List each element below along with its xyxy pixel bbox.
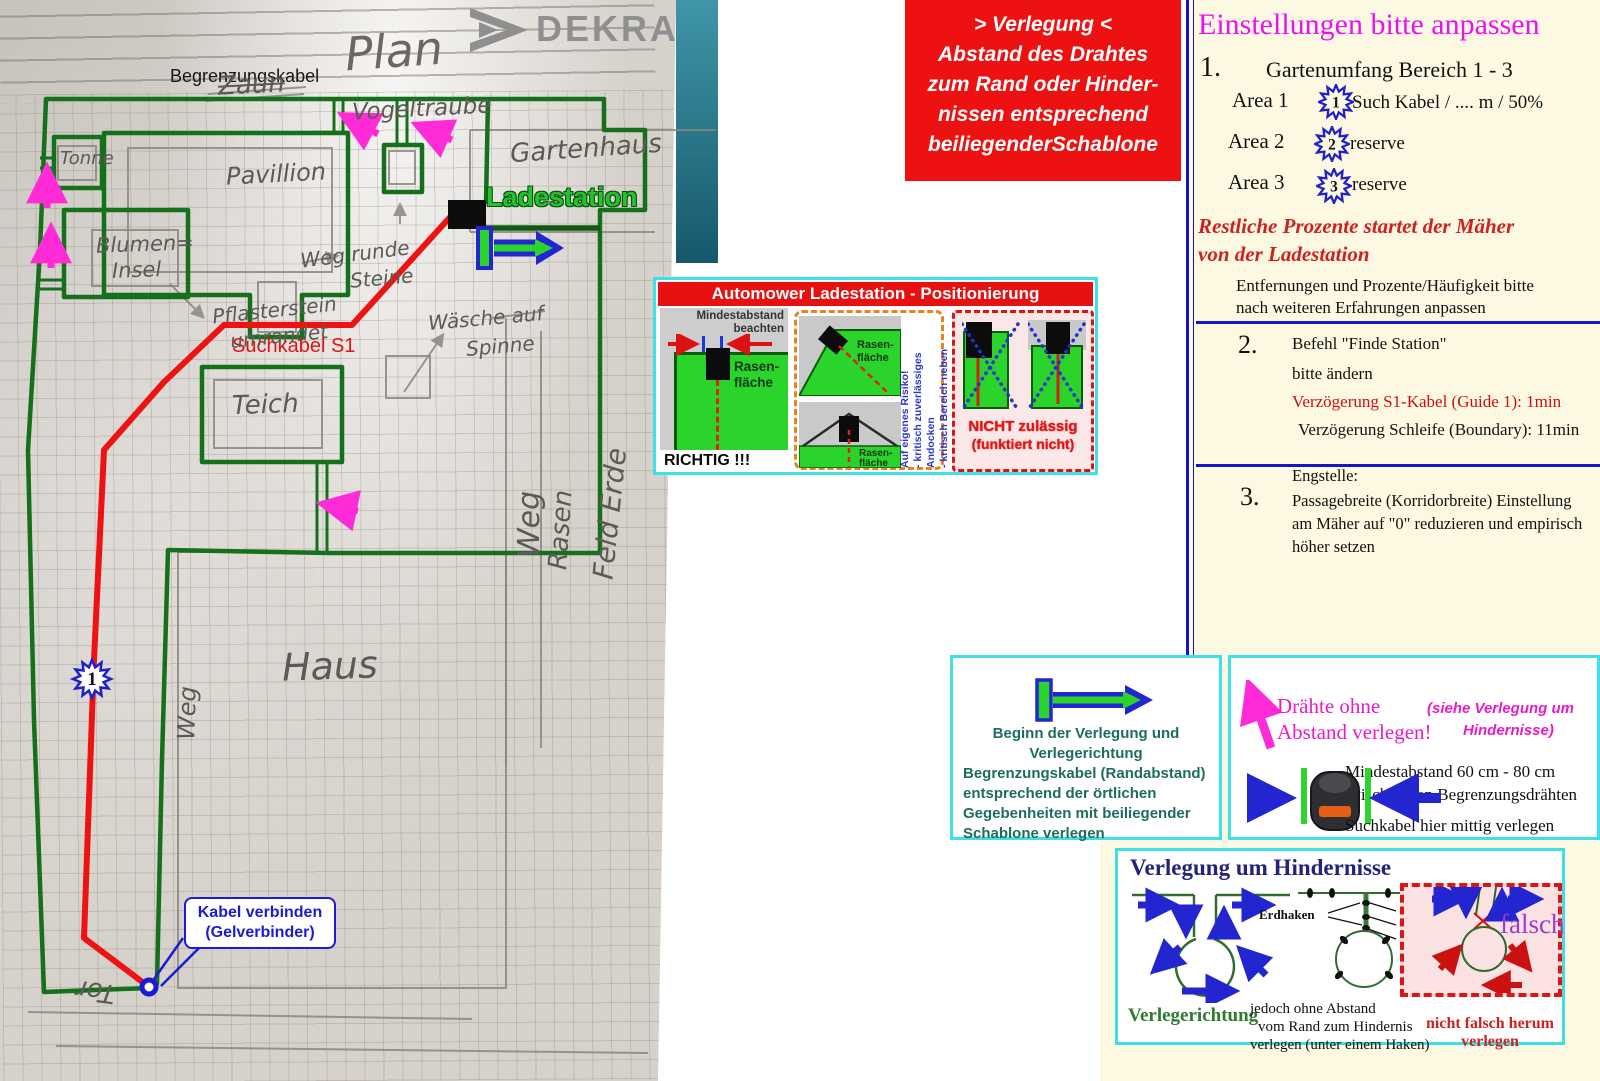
richtig-diagram: Mindestabstand beachten Rasen- fläche xyxy=(660,308,788,450)
item3-number: 3. xyxy=(1240,482,1260,512)
hw-blumen-1: Blumen= xyxy=(96,230,195,257)
item2-line1: Befehl "Finde Station" xyxy=(1292,334,1447,354)
nicht-diagram-2 xyxy=(1028,320,1086,412)
draehte-panel: Drähte ohne Abstand verlegen! (siehe Ver… xyxy=(1228,655,1600,840)
note-red-1: Restliche Prozente startet der Mäher xyxy=(1198,214,1514,239)
rasen-label-1b: fläche xyxy=(734,376,773,389)
automower-position-panel: Automower Ladestation - Positionierung M… xyxy=(653,277,1098,475)
item2-line4: Verzögerung Schleife (Boundary): 11min xyxy=(1298,420,1579,440)
area-2-badge: 2 xyxy=(1328,136,1336,153)
siehe-line2: Hindernisse) xyxy=(1463,722,1554,739)
item2-number: 2. xyxy=(1238,330,1258,360)
note-line: Abstand des Drahtes xyxy=(905,40,1181,70)
beginn-line6: Schablone verlegen xyxy=(963,824,1105,844)
separator-1 xyxy=(1196,321,1600,324)
guide-dashed-line xyxy=(716,380,719,450)
kabel-verbinden-callout: Kabel verbinden (Gelverbinder) xyxy=(184,897,336,949)
item2-red: Verzögerung S1-Kabel (Guide 1): 1min xyxy=(1292,392,1561,412)
area-2-star-icon: 2 xyxy=(1314,126,1350,162)
rasen-label-2b: fläche xyxy=(857,352,889,364)
hw-weg-haus: Weg xyxy=(172,630,204,741)
risiko-diagram-diagonal: Rasen- fläche xyxy=(799,316,901,396)
nicht-diagram-1 xyxy=(962,320,1020,412)
rasen-label-1a: Rasen- xyxy=(734,360,779,373)
ladestation-label: Ladestation xyxy=(486,182,638,213)
nicht-zulaessig-text2: (funktiert nicht) xyxy=(954,436,1092,452)
start-direction-arrow-icon xyxy=(478,228,564,268)
area-3-label: Area 3 xyxy=(1228,170,1285,195)
jedoch-line3: verlegen (unter einem Haken) xyxy=(1250,1037,1430,1054)
note-black-2: nach weiteren Erfahrungen anpassen xyxy=(1236,298,1486,318)
area-3-badge: 3 xyxy=(1330,178,1338,195)
cable-connector-icon xyxy=(142,980,156,994)
nicht-zulaessig-text1: NICHT zulässig xyxy=(954,418,1092,435)
hw-zaun: Zaun xyxy=(217,68,285,101)
item3-line2: Passagebreite (Korridorbreite) Einstellu… xyxy=(1292,491,1572,511)
area-2-value: reserve xyxy=(1350,133,1405,155)
suchkabel-mittig-label: Suchkabel hier mittig verlegen xyxy=(1345,816,1554,836)
area-1-value: Such Kabel / .... m / 50% xyxy=(1352,92,1543,114)
item1-number: 1. xyxy=(1200,52,1221,84)
kabel-verbinden-line2: (Gelverbinder) xyxy=(190,923,330,943)
draehte-line1: Drähte ohne xyxy=(1277,694,1380,719)
obstacle-loop-diagram xyxy=(1130,885,1295,1003)
hw-tor: Tor xyxy=(74,973,117,1008)
rasen-label-3b: fläche xyxy=(859,458,888,468)
beginn-line1: Beginn der Verlegung und xyxy=(953,724,1219,744)
verlegung-note-box: > Verlegung < Abstand des Drahtes zum Ra… xyxy=(905,0,1181,181)
automower-panel-header: Automower Ladestation - Positionierung xyxy=(658,282,1093,306)
hw-plan: Plan xyxy=(343,21,444,82)
area-2-label: Area 2 xyxy=(1228,129,1285,154)
nicht-falsch-line1: nicht falsch herum xyxy=(1410,1015,1570,1033)
nicht-falsch-line2: verlegen xyxy=(1410,1033,1570,1051)
area-3-value: reserve xyxy=(1352,174,1407,196)
area-3-star-icon: 3 xyxy=(1316,168,1352,204)
einstellungen-title: Einstellungen bitte anpassen xyxy=(1198,8,1540,42)
richtig-label: RICHTIG !!! xyxy=(664,452,750,470)
falsch-diagram xyxy=(1404,887,1558,993)
dekra-logo-icon xyxy=(470,8,528,52)
item3-line1: Engstelle: xyxy=(1292,466,1358,486)
note-red-2: von der Ladestation xyxy=(1198,242,1370,267)
area-1-badge: 1 xyxy=(1332,94,1340,111)
rasen-label-2a: Rasen- xyxy=(857,339,894,351)
hindernisse-panel: Verlegung um Hindernisse Verlegerichtung xyxy=(1115,848,1565,1045)
note-line: > Verlegung < xyxy=(905,10,1181,40)
start-arrow-icon xyxy=(1035,678,1159,722)
hw-haus: Haus xyxy=(281,642,378,689)
verlegerichtung-label: Verlegerichtung xyxy=(1128,1005,1258,1027)
note-line: zum Rand oder Hinder- xyxy=(905,70,1181,100)
area-1-label: Area 1 xyxy=(1232,88,1289,113)
charging-station-icon xyxy=(448,200,486,229)
beginn-line2: Verlegerichtung xyxy=(953,744,1219,764)
erdhaken-label: Erdhaken xyxy=(1259,907,1315,923)
einstellungen-panel: Einstellungen bitte anpassen 1. Gartenum… xyxy=(1186,0,1600,657)
separator-2 xyxy=(1196,464,1600,467)
garden-plan-sheet: 1 DEKRA Begrenzungskabel Ladestation Suc… xyxy=(0,0,1600,1081)
area-1-star-badge: 1 xyxy=(73,660,111,698)
item2-line2: bitte ändern xyxy=(1292,364,1373,384)
hw-pavillion: Pavillion xyxy=(225,157,326,190)
dekra-logo-text: DEKRA xyxy=(536,8,679,50)
hindernisse-title: Verlegung um Hindernisse xyxy=(1130,855,1391,881)
item3-line3: am Mäher auf "0" reduzieren und empirisc… xyxy=(1292,514,1582,534)
hw-blumen-2: Insel xyxy=(112,257,162,283)
note-line: beiliegenderSchablone xyxy=(905,130,1181,160)
beginn-line5: Gegebenheiten mit beiliegender xyxy=(963,804,1191,824)
mindestabstand-text: Mindestabstand beachten xyxy=(668,310,784,336)
item3-line4: höher setzen xyxy=(1292,537,1375,557)
station-block xyxy=(706,348,730,380)
item1-text: Gartenumfang Bereich 1 - 3 xyxy=(1266,57,1513,83)
beginn-line4: entsprechend der örtlichen xyxy=(963,784,1156,804)
falsch-label: falsch xyxy=(1500,909,1564,940)
jedoch-line1: jedoch ohne Abstand xyxy=(1250,1001,1376,1018)
star-badge-number: 1 xyxy=(87,669,97,690)
mindestabstand-line1: Mindestabstand xyxy=(668,310,784,323)
jedoch-line2: vom Rand zum Hindernis xyxy=(1258,1019,1413,1036)
draehte-line2: Abstand verlegen! xyxy=(1277,720,1432,745)
area-1-star-icon: 1 xyxy=(1318,84,1354,120)
hw-teich: Teich xyxy=(231,389,299,421)
risiko-diagram-roof: Rasen- fläche xyxy=(799,402,901,468)
kabel-verbinden-line1: Kabel verbinden xyxy=(190,903,330,923)
beginn-panel: Beginn der Verlegung und Verlegerichtung… xyxy=(950,655,1222,840)
plan-photo: 1 DEKRA Begrenzungskabel Ladestation Suc… xyxy=(0,0,718,1081)
risiko-line1: Auf eigenes Risiko! xyxy=(899,310,912,468)
note-black-1: Entfernungen und Prozente/Häufigkeit bit… xyxy=(1236,276,1534,296)
hw-weg-seite: Weg xyxy=(512,398,547,558)
hw-tonne: Tonne xyxy=(60,148,114,169)
beginn-line3: Begrenzungskabel (Randabstand) xyxy=(963,764,1206,784)
siehe-line1: (siehe Verlegung um xyxy=(1427,700,1574,717)
risiko-line2: - kritisch zuverlässiges Andocken xyxy=(912,310,938,468)
note-line: nissen entsprechend xyxy=(905,100,1181,130)
